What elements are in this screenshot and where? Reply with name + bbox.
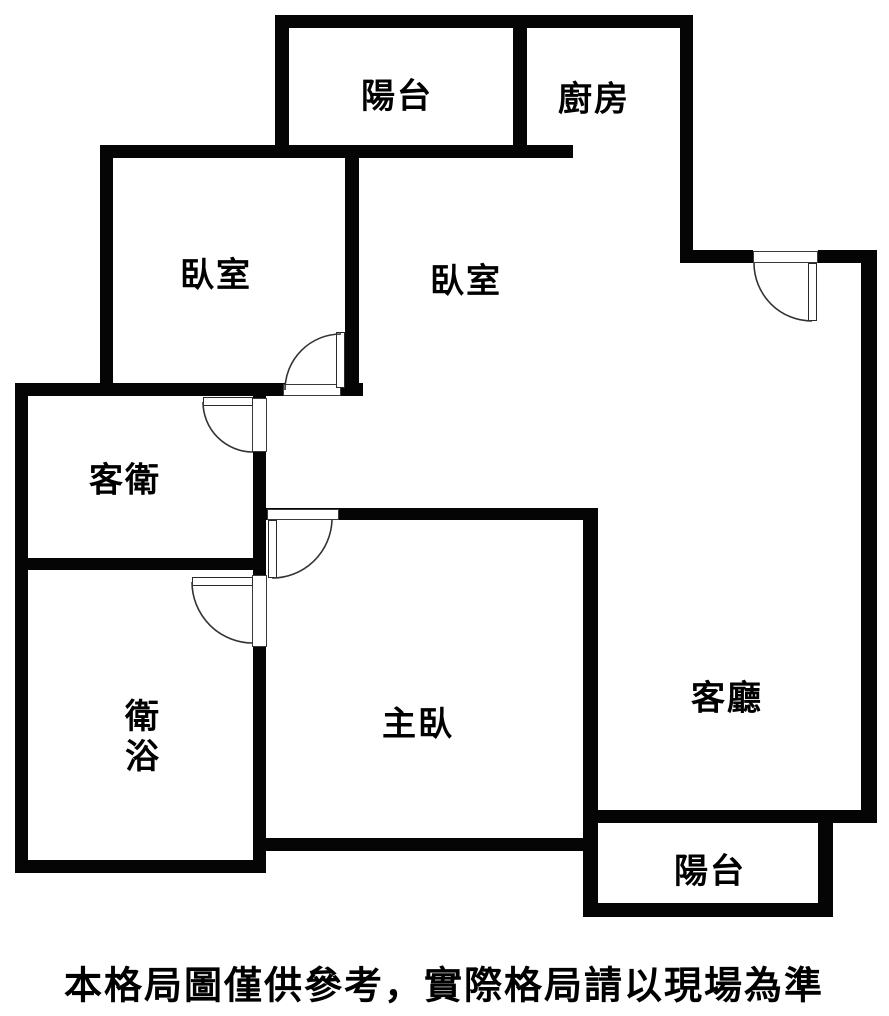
room-label-bedroom-left: 臥室 xyxy=(180,248,252,297)
door-leaf-entry xyxy=(808,263,817,321)
wall-bath-south xyxy=(15,860,265,873)
room-label-master: 主臥 xyxy=(382,697,454,746)
wall-balcony-top-left xyxy=(275,15,289,148)
room-label-balcony-top: 陽台 xyxy=(361,69,433,118)
wall-upper-horizontal xyxy=(100,145,573,158)
wall-right-outer xyxy=(861,250,877,823)
wall-bedroom-left-south-a xyxy=(15,383,285,396)
disclaimer-text: 本格局圖僅供參考，實際格局請以現場為準 xyxy=(64,955,824,1010)
wall-bedroom-left-west xyxy=(100,147,113,385)
room-label-bath-line2: 浴 xyxy=(125,737,159,777)
floor-plan: 陽台 廚房 臥室 臥室 客衛 衛 浴 主臥 客廳 陽台 本格局圖僅供參考，實際格… xyxy=(0,0,889,1016)
door-arc-bedroom-left xyxy=(285,334,341,390)
wall-entry-left xyxy=(680,250,753,263)
room-label-bath: 衛 浴 xyxy=(125,697,159,777)
room-label-bath-line1: 衛 xyxy=(125,697,159,737)
wall-master-east xyxy=(583,508,598,917)
wall-kitchen-east xyxy=(680,15,693,263)
wall-bath-divider xyxy=(15,558,253,570)
door-arc-guest-bath xyxy=(203,402,253,452)
wall-kitchen-divider xyxy=(513,27,527,148)
door-leaf-bath xyxy=(192,577,253,586)
door-opening-bedroom-left xyxy=(283,384,341,396)
room-label-kitchen: 廚房 xyxy=(558,72,630,121)
wall-left-outer xyxy=(15,383,28,873)
wall-bedroom-divider xyxy=(345,158,359,385)
wall-master-south xyxy=(265,838,583,851)
door-arc-entry xyxy=(754,263,812,321)
wall-balcony-bottom-south xyxy=(583,903,833,917)
room-label-living: 客廳 xyxy=(691,671,763,720)
wall-living-south xyxy=(598,810,877,823)
door-opening-guest-bath xyxy=(252,398,267,452)
door-opening-master xyxy=(267,509,339,520)
door-leaf-master xyxy=(268,520,277,578)
room-label-bedroom-middle: 臥室 xyxy=(430,254,502,303)
room-label-guest-bath: 客衛 xyxy=(89,453,161,502)
door-leaf-bedroom-left xyxy=(336,332,345,388)
room-label-balcony-bottom: 陽台 xyxy=(674,844,746,893)
door-leaf-guest-bath xyxy=(203,397,253,406)
door-arc-bath xyxy=(192,582,253,643)
door-opening-bath xyxy=(252,575,267,647)
wall-top-outer xyxy=(275,15,690,28)
wall-balcony-bottom-east xyxy=(818,823,833,917)
door-arc-master xyxy=(272,520,332,578)
door-opening-entry xyxy=(753,251,818,263)
